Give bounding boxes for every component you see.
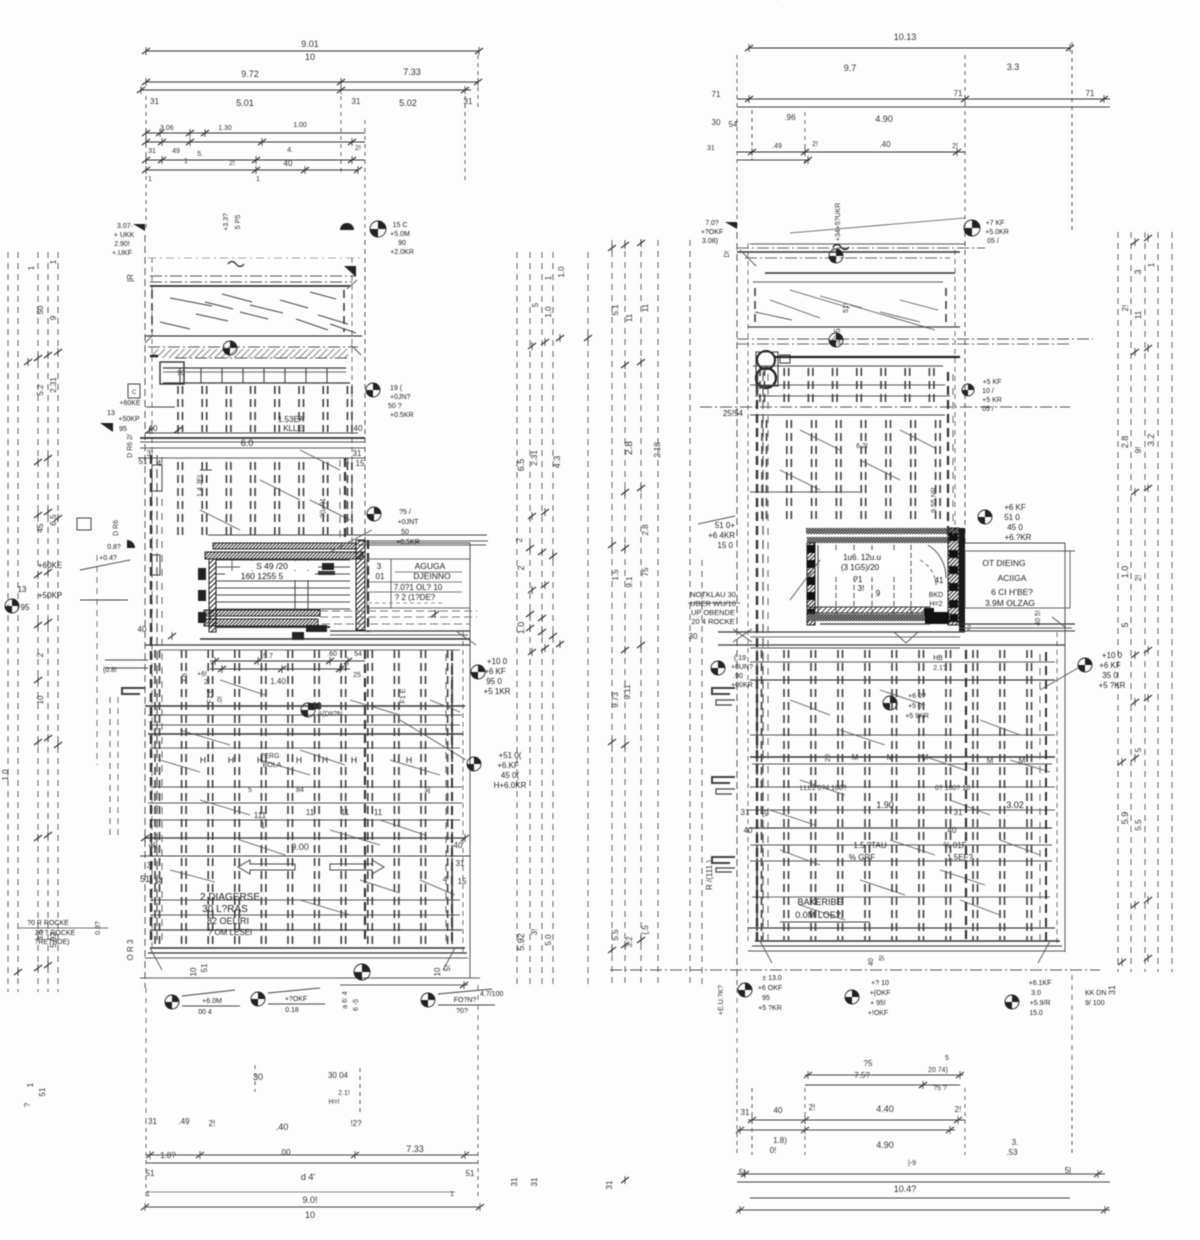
svg-text:?1: ?1 [854, 575, 863, 584]
svg-text:+5.9/R: +5.9/R [1030, 1000, 1051, 1007]
svg-text:a 6: 4: a 6: 4 [342, 991, 349, 1009]
svg-text:H: H [228, 755, 234, 765]
svg-text:31: 31 [148, 148, 156, 155]
svg-text:13: 13 [18, 585, 27, 594]
svg-text:40: 40 [868, 958, 875, 966]
svg-text:....: .... [291, 583, 299, 590]
svg-text:.49: .49 [178, 1117, 190, 1126]
svg-text:1.0: 1.0 [557, 266, 566, 278]
svg-text:+.UKF: +.UKF [112, 250, 132, 257]
svg-text:51 0: 51 0 [1004, 513, 1020, 522]
svg-text:1: 1 [261, 821, 266, 830]
svg-text:+6.1KF: +6.1KF [1029, 980, 1052, 987]
svg-text:41: 41 [935, 576, 944, 585]
svg-text:30 04: 30 04 [328, 1071, 349, 1080]
svg-text:1: 1 [544, 275, 553, 280]
svg-text:11: 11 [1134, 310, 1143, 319]
svg-text:2.8: 2.8 [641, 524, 650, 536]
svg-text:15.0: 15.0 [1029, 1010, 1043, 1017]
svg-text:+ 95!: + 95! [870, 1000, 886, 1007]
svg-text:5: 5 [248, 787, 252, 794]
svg-text:+0UN?: +0UN? [731, 664, 753, 671]
svg-text:00 4: 00 4 [198, 1009, 212, 1016]
svg-text:2!: 2! [1134, 575, 1143, 582]
svg-text:D!: D! [724, 250, 731, 257]
svg-text:1.30: 1.30 [218, 125, 232, 132]
svg-text:F1 E: F1 E [400, 688, 407, 703]
svg-text:+5 KF: +5 KF [983, 379, 1002, 386]
svg-text:30: 30 [689, 632, 698, 641]
svg-text:5: 5 [1134, 747, 1143, 752]
svg-text:5.5: 5.5 [1134, 819, 1143, 831]
svg-text:+5 0: +5 0 [908, 703, 922, 710]
svg-text:49: 49 [172, 148, 180, 155]
svg-text:+5 KR: +5 KR [982, 397, 1002, 404]
svg-text:40: 40 [774, 1106, 783, 1115]
svg-text:5.7: 5.7 [263, 653, 273, 660]
svg-text:5.0: 5.0 [544, 934, 553, 946]
svg-text:40 5!: 40 5! [1035, 610, 1042, 626]
svg-text:10: 10 [36, 695, 45, 704]
svg-text:0.0M LOE?: 0.0M LOE? [795, 910, 841, 920]
svg-text:9.0!: 9.0! [302, 1195, 317, 1205]
svg-text:+3.3?: +3.3? [223, 213, 230, 231]
svg-text:1.53EA: 1.53EA [278, 415, 305, 424]
svg-text:% 01F: % 01F [943, 841, 966, 850]
svg-text:UBER WU/10: UBER WU/10 [690, 599, 736, 608]
svg-text:9.11: 9.11 [623, 684, 632, 700]
svg-text:+5 1KR: +5 1KR [484, 687, 511, 696]
svg-text:45 0(: 45 0( [501, 771, 520, 780]
svg-text:51!: 51! [843, 303, 850, 313]
svg-text:+60KE: +60KE [38, 561, 62, 570]
svg-text:13: 13 [107, 410, 115, 417]
svg-text:95: 95 [762, 995, 770, 1002]
svg-text:1: 1 [148, 176, 152, 183]
svg-text:1.5EF?: 1.5EF? [947, 853, 973, 862]
svg-text:2.18: 2.18 [653, 442, 662, 458]
svg-text:40: 40 [354, 424, 363, 433]
svg-text:31: 31 [741, 1108, 750, 1117]
svg-text:75: 75 [641, 567, 650, 576]
svg-text:35 0: 35 0 [1102, 671, 1118, 680]
svg-text:7.0?1 OL? 10: 7.0?1 OL? 10 [394, 583, 443, 592]
svg-text:(.19: (.19 [734, 655, 746, 662]
svg-text:1u6. 12u.u: 1u6. 12u.u [843, 553, 881, 562]
svg-text:.40: .40 [276, 1122, 289, 1132]
svg-text:10 /: 10 / [982, 388, 994, 395]
svg-text:?5 /: ?5 / [399, 509, 411, 516]
svg-text:A(DII?N: A(DII?N [318, 711, 343, 718]
svg-text:+0JNT: +0JNT [398, 519, 420, 526]
svg-text:?ERG: ?ERG [260, 753, 279, 760]
svg-text:7.0?: 7.0? [705, 220, 719, 227]
svg-text:?(L /)1: ?(L /)1 [320, 498, 327, 518]
svg-text:10: 10 [189, 967, 198, 976]
svg-text:1.00: 1.00 [293, 122, 307, 129]
svg-text:!2?: !2? [350, 1119, 362, 1128]
svg-text:+5 ?KR: +5 ?KR [758, 1005, 782, 1012]
svg-text:5: 5 [531, 302, 540, 307]
svg-text:25!54: 25!54 [723, 409, 744, 418]
svg-text:40: 40 [948, 826, 957, 835]
svg-text:D R6: D R6 [113, 520, 120, 536]
svg-text:?5 ?: ?5 ? [933, 1085, 947, 1092]
svg-text:6.2!: 6.2! [856, 443, 868, 450]
svg-text:+!OKF: +!OKF [868, 1010, 888, 1017]
svg-text:20 ? ROCKE: 20 ? ROCKE [35, 930, 76, 937]
svg-text:7.33: 7.33 [403, 67, 421, 77]
svg-text:2: 2 [515, 537, 524, 542]
svg-text:D R6 2/: D R6 2/ [127, 434, 134, 458]
svg-text:3.07·: 3.07· [117, 223, 133, 230]
svg-text:3.: 3. [1012, 1138, 1019, 1147]
svg-text:10.13: 10.13 [894, 32, 917, 42]
svg-text:+51 0(: +51 0( [499, 751, 522, 760]
svg-text:30: 30 [712, 118, 721, 127]
svg-text:2.31: 2.31 [49, 377, 58, 393]
svg-text:FO?N?: FO?N? [454, 997, 477, 1004]
svg-text:5.92: 5.92 [516, 933, 526, 951]
svg-text:90: 90 [177, 370, 185, 377]
svg-text:H=!: H=! [328, 1099, 339, 1106]
svg-text:9.72: 9.72 [241, 69, 259, 79]
svg-text:2!: 2! [809, 1103, 816, 1112]
svg-text:31: 31 [150, 97, 159, 106]
svg-text:1.0: 1.0 [1, 769, 10, 781]
svg-text:4.90: 4.90 [875, 114, 893, 124]
svg-text:+10 0: +10 0 [1102, 651, 1123, 660]
svg-text:+34+5?UKR: +34+5?UKR [835, 203, 842, 242]
svg-text:15: 15 [458, 877, 467, 886]
svg-text:5.: 5. [197, 151, 203, 158]
svg-text:(.5: (.5 [641, 925, 650, 935]
svg-text:15 0: 15 0 [717, 541, 733, 550]
svg-text:4: 4 [443, 875, 448, 884]
svg-text:50 ?: 50 ? [388, 403, 402, 410]
svg-text:51: 51 [140, 874, 150, 884]
svg-text:2!: 2! [204, 679, 210, 686]
svg-text:H: H [322, 755, 328, 765]
svg-text:+6.?KR: +6.?KR [1005, 533, 1032, 542]
svg-text:10: 10 [305, 1210, 315, 1220]
svg-text:3: 3 [377, 562, 382, 571]
svg-text:5: 5 [1120, 622, 1130, 627]
svg-text:2!: 2! [355, 145, 361, 152]
svg-text:40: 40 [138, 625, 147, 634]
svg-text:9.1: 9.1 [625, 576, 634, 588]
svg-text:6.5: 6.5 [516, 459, 526, 472]
svg-text:9/ 100: 9/ 100 [1085, 1000, 1105, 1007]
svg-text:+5.0KR: +5.0KR [985, 229, 1009, 236]
svg-text:9.55 NR: 9.55 NR [931, 487, 938, 513]
svg-text:5.2: 5.2 [36, 384, 45, 396]
svg-text:9.73: 9.73 [611, 692, 620, 708]
svg-text:2!: 2! [812, 141, 818, 148]
svg-text:90: 90 [398, 240, 406, 247]
svg-text:AGUGA: AGUGA [415, 561, 446, 571]
svg-text:30: 30 [253, 1072, 263, 1082]
svg-text:+10 0: +10 0 [487, 657, 508, 666]
svg-text:2.31: 2.31 [530, 450, 539, 466]
svg-text:1.0: 1.0 [1120, 566, 1130, 579]
svg-text:+5 ?KR: +5 ?KR [1099, 681, 1126, 690]
svg-text:1.0: 1.0 [516, 622, 526, 635]
svg-text:+?OKF: +?OKF [285, 996, 307, 1003]
svg-text:9.00: 9.00 [291, 842, 309, 852]
svg-text:+6.KF: +6.KF [497, 761, 519, 770]
svg-text:1.90: 1.90 [876, 800, 894, 810]
svg-text:11: 11 [625, 313, 634, 322]
svg-text:1: 1 [450, 1191, 454, 1198]
svg-text:01: 01 [376, 572, 385, 581]
svg-text:H=2: H=2 [929, 601, 942, 608]
svg-text:1.0: 1.0 [544, 306, 553, 318]
svg-text:30: 30 [425, 786, 432, 794]
svg-text:S 49 /20: S 49 /20 [256, 561, 288, 571]
svg-text:40: 40 [744, 826, 753, 835]
svg-text:11: 11 [374, 808, 383, 817]
svg-text:?0 R ROCKE: ?0 R ROCKE [27, 920, 69, 927]
svg-text:2.1?: 2.1? [933, 665, 947, 672]
svg-text:1.40: 1.40 [270, 677, 286, 686]
svg-text:0? 100? 10: 0? 100? 10 [935, 785, 970, 792]
svg-text:2!: 2! [229, 160, 235, 167]
svg-text:+6 KF: +6 KF [1099, 661, 1121, 670]
svg-text:51: 51 [200, 963, 209, 972]
svg-text:BAKERIBE: BAKERIBE [797, 897, 842, 907]
svg-text:UP OBENDE: UP OBENDE [691, 608, 735, 617]
svg-text:+2.0KR: +2.0KR [390, 249, 414, 256]
svg-text:+6 0?: +6 0? [908, 693, 926, 700]
svg-text:9!: 9! [1134, 447, 1143, 454]
svg-text:15 C: 15 C [393, 222, 408, 229]
svg-text:9: 9 [876, 589, 881, 598]
svg-text:+(OKF: +(OKF [870, 990, 891, 997]
svg-text:19 (: 19 ( [390, 385, 403, 392]
svg-text:71: 71 [712, 90, 721, 99]
svg-text:2.90!: 2.90! [114, 241, 130, 248]
svg-text:1.5: 1.5 [611, 569, 620, 581]
svg-text:.49: .49 [772, 143, 782, 150]
svg-text:05 /: 05 / [982, 406, 994, 413]
svg-text:H: H [296, 755, 302, 765]
svg-text:31: 31 [353, 449, 362, 458]
svg-text:.0!: .0! [217, 696, 224, 704]
svg-text:BOLA: BOLA [263, 762, 282, 769]
svg-text:.40: .40 [879, 140, 891, 149]
svg-text:3.3: 3.3 [1007, 62, 1020, 72]
svg-text:3.08): 3.08) [702, 238, 718, 245]
svg-text:4.: 4. [287, 147, 293, 154]
svg-text:+? 10: +? 10 [871, 980, 889, 987]
svg-text:5: 5 [945, 1055, 949, 1062]
svg-text:54: 54 [354, 651, 362, 658]
svg-text:9.01: 9.01 [301, 39, 319, 49]
svg-text:1.8?: 1.8? [160, 1151, 176, 1160]
svg-text:+0.5KR: +0.5KR [396, 539, 420, 546]
svg-text:+6!: +6! [197, 671, 207, 678]
svg-text:31: 31 [352, 97, 361, 106]
svg-text:95: 95 [21, 603, 30, 612]
svg-text:30 L?RAS: 30 L?RAS [202, 904, 248, 915]
svg-text:|R: |R [126, 274, 135, 282]
svg-text:0.8?: 0.8? [107, 544, 121, 551]
svg-text:5!: 5! [879, 955, 886, 961]
svg-text:LLL1 0?4 100?: LLL1 0?4 100? [800, 785, 847, 792]
svg-text:6.0: 6.0 [241, 438, 254, 448]
svg-text:5.02: 5.02 [399, 98, 417, 108]
svg-text:.00: .00 [279, 1148, 291, 1157]
svg-text:H: H [351, 755, 357, 765]
svg-text:DJEINNO: DJEINNO [413, 571, 451, 581]
svg-text:H: H [406, 755, 412, 765]
svg-text:+7 KF: +7 KF [986, 220, 1005, 227]
svg-text:3.2: 3.2 [625, 936, 634, 948]
svg-text:KLLE: KLLE [283, 424, 303, 433]
svg-text:HB: HB [933, 655, 943, 662]
svg-text:10.4?: 10.4? [894, 1184, 917, 1194]
svg-text:9: 9 [49, 315, 58, 320]
svg-text:M: M [852, 753, 859, 762]
svg-text:4.7/100: 4.7/100 [480, 991, 503, 998]
svg-text:3: 3 [1133, 269, 1143, 274]
svg-text:+0JN?: +0JN? [390, 394, 411, 401]
svg-text:2!: 2! [1121, 305, 1130, 312]
svg-text:160 1255 5: 160 1255 5 [241, 571, 284, 581]
svg-text:05 /: 05 / [987, 238, 999, 245]
svg-text:+?OKF: +?OKF [701, 229, 723, 236]
svg-text:2!: 2! [209, 1119, 216, 1128]
svg-text:45 0: 45 0 [1007, 523, 1023, 532]
svg-text:20 74): 20 74) [928, 1067, 948, 1074]
svg-text:?RETHDE): ?RETHDE) [34, 939, 69, 946]
svg-text:2: 2 [967, 625, 971, 632]
svg-text:+0.4?: +0.4? [99, 555, 117, 562]
svg-text:.96: .96 [784, 113, 796, 122]
svg-text:?: ? [23, 1102, 32, 1107]
svg-text:2 DIAGERSE: 2 DIAGERSE [200, 892, 260, 903]
svg-text:+6 OKF: +6 OKF [758, 985, 782, 992]
svg-text:31: 31 [510, 1177, 519, 1186]
svg-text:d 4': d 4' [301, 1172, 316, 1182]
svg-text:31: 31 [530, 1177, 539, 1186]
svg-text:M: M [887, 753, 894, 762]
svg-text:40: 40 [454, 841, 463, 850]
svg-text:1: 1 [26, 1082, 35, 1087]
svg-text:6 CI H'BE?: 6 CI H'BE? [991, 587, 1033, 597]
svg-text:31: 31 [954, 808, 963, 817]
svg-text:31: 31 [741, 808, 750, 817]
svg-text:± 13.0: ± 13.0 [762, 975, 782, 982]
svg-text:+0.5KR: +0.5KR [390, 412, 414, 419]
svg-text:5|: 5| [739, 1168, 746, 1177]
svg-text:4.40: 4.40 [876, 1104, 894, 1114]
svg-text:20 4 ROCKE: 20 4 ROCKE [691, 617, 734, 626]
svg-text:+50KP: +50KP [38, 591, 62, 600]
svg-text:31: 31 [456, 859, 465, 868]
svg-text:5.01: 5.01 [236, 98, 254, 108]
svg-text:45: 45 [36, 523, 45, 532]
svg-text:1: 1 [256, 176, 260, 183]
svg-text:.60: .60 [327, 651, 337, 658]
svg-text:? OM LESEI: ? OM LESEI [208, 928, 252, 937]
svg-text:95: 95 [119, 426, 127, 433]
svg-text:0.18: 0.18 [285, 1007, 299, 1014]
svg-text:|-9: |-9 [908, 1160, 916, 1167]
svg-text:3!: 3! [858, 584, 865, 593]
svg-text:11: 11 [641, 303, 650, 312]
svg-text:R /(111 ): R /(111 ) [705, 860, 714, 890]
svg-text:15: 15 [356, 459, 365, 468]
svg-text:51 0+: 51 0+ [715, 521, 736, 530]
svg-text:H+6.0KR: H+6.0KR [494, 781, 527, 790]
svg-text:4.3: 4.3 [552, 456, 562, 469]
svg-text:84: 84 [296, 787, 304, 794]
svg-text:ACIIGA: ACIIGA [998, 573, 1027, 583]
svg-text:31: 31 [148, 1117, 157, 1126]
svg-text:OT DIEING: OT DIEING [982, 558, 1025, 568]
svg-text:3.9M OLZAG: 3.9M OLZAG [985, 598, 1035, 608]
svg-text:2: 2 [516, 565, 526, 570]
svg-text:5|: 5| [1065, 1166, 1072, 1175]
svg-text:3!: 3! [530, 929, 539, 936]
svg-text:25: 25 [353, 672, 361, 679]
svg-text:1: 1 [27, 265, 36, 270]
svg-text:11: 11 [341, 808, 350, 817]
svg-text:?5: ?5 [864, 1059, 873, 1068]
svg-text:% GRF: % GRF [849, 853, 875, 862]
svg-text:3.06: 3.06 [160, 125, 174, 132]
svg-text:20: 20 [825, 754, 832, 762]
svg-text:+5.0M: +5.0M [390, 231, 410, 238]
svg-text:1.4 JEL: 1.4 JEL [197, 473, 204, 497]
svg-text:+6 KF: +6 KF [484, 667, 506, 676]
svg-text:71: 71 [1086, 89, 1095, 98]
svg-text:O R 3: O R 3 [126, 939, 135, 960]
svg-text:51: 51 [466, 1169, 475, 1178]
svg-text:7.33: 7.33 [406, 1144, 424, 1154]
svg-text:31: 31 [605, 1180, 614, 1189]
svg-text:71: 71 [954, 89, 963, 98]
svg-text:51: 51 [38, 1087, 47, 1096]
svg-text:2: 2 [36, 652, 45, 657]
svg-text:+ UKK: + UKK [114, 232, 135, 239]
svg-text:KK DN: KK DN [1085, 990, 1106, 997]
svg-text:+6 4KR: +6 4KR [708, 531, 735, 540]
svg-text:7.5?: 7.5? [854, 1071, 870, 1080]
svg-text:5.9: 5.9 [1120, 812, 1130, 825]
svg-text:.53: .53 [1006, 1148, 1018, 1157]
svg-text:51: 51 [146, 1169, 155, 1178]
svg-text:+60KE: +60KE [119, 400, 141, 407]
svg-text:BKD: BKD [929, 592, 943, 599]
svg-text:50: 50 [36, 305, 45, 314]
svg-text:2.1!: 2.1! [338, 1090, 350, 1097]
svg-text:1: 1 [184, 158, 188, 165]
svg-text:10: 10 [305, 52, 315, 62]
svg-text:95 0: 95 0 [486, 677, 502, 686]
svg-text:3.0: 3.0 [1031, 990, 1041, 997]
svg-text:50: 50 [401, 529, 409, 536]
svg-text:+6 KF: +6 KF [1004, 503, 1026, 512]
svg-text:4.90: 4.90 [876, 1140, 894, 1150]
svg-text:31: 31 [707, 145, 715, 152]
svg-text:?0?: ?0? [456, 1008, 468, 1015]
svg-text:5!: 5! [443, 965, 452, 972]
svg-text:+6.0M: +6.0M [202, 998, 222, 1005]
svg-text:1: 1 [146, 1191, 150, 1198]
